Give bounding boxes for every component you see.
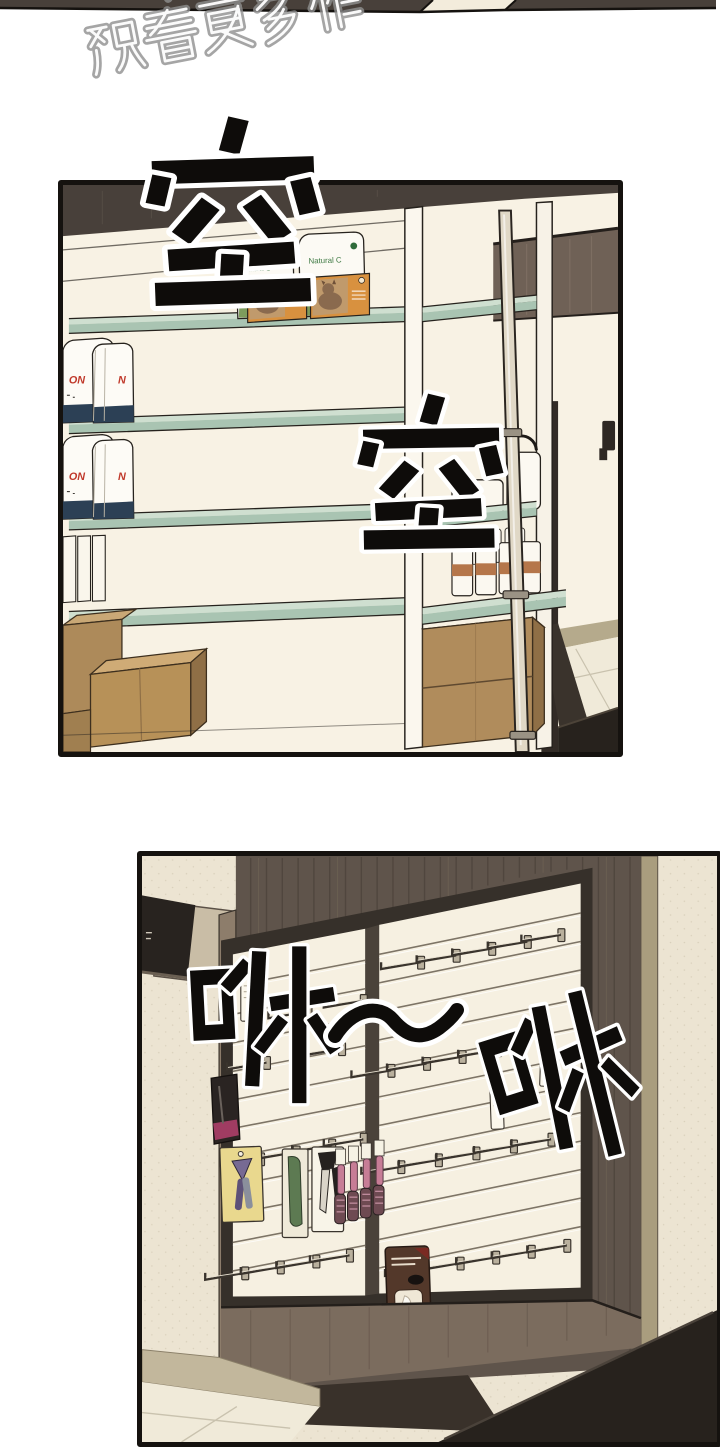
natural-c-label: Natural C [308, 255, 342, 265]
slat-section-right [379, 884, 581, 1294]
shelf-pillar-mid [405, 207, 423, 749]
bag-brand-fragment-2: N [118, 374, 126, 386]
watermark [75, 0, 372, 77]
yellow-tool-card [220, 1146, 264, 1222]
panel-1-scene: Natural C Natural C ON [63, 185, 618, 752]
slatwall-frame [221, 868, 592, 1307]
panel-2-slatwall-display [137, 851, 720, 1447]
panel-1-empty-shelves: Natural C Natural C ON [58, 180, 623, 757]
green-comb-card [282, 1149, 308, 1237]
previous-panel-edge [0, 0, 716, 12]
watermark-line1 [134, 0, 360, 6]
white-packs [63, 535, 105, 602]
pet-food-bags: ON N [63, 338, 134, 423]
natural-c-label-small: Natural C [244, 266, 272, 274]
khaki-corner-trim [641, 856, 658, 1367]
dark-treat-bag [211, 1074, 240, 1144]
door-hinge [602, 421, 615, 450]
bag-brand-fragment: ON [69, 374, 85, 386]
panel-2-scene [142, 856, 717, 1442]
slat-divider [365, 925, 379, 1296]
watermark-line2 [87, 0, 365, 77]
door-hinge-lower [599, 448, 607, 460]
